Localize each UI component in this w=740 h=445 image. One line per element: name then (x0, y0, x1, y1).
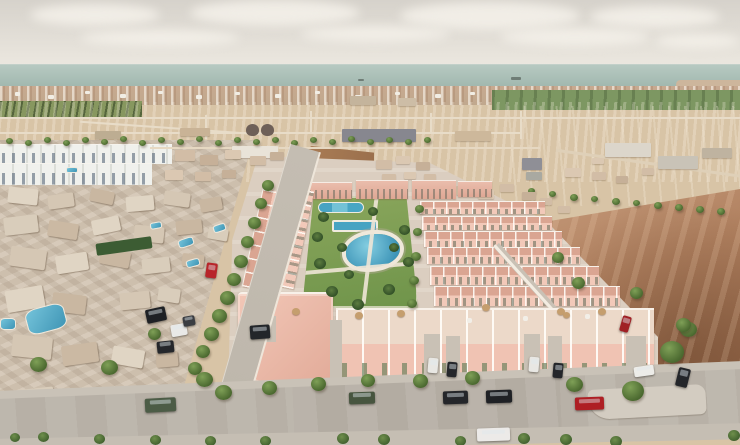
speck (396, 156, 410, 164)
bush (260, 436, 271, 445)
umb (355, 312, 363, 319)
dot (120, 94, 126, 98)
tree (196, 345, 210, 358)
bldg (95, 131, 121, 139)
tree (566, 377, 583, 392)
bush (560, 434, 572, 445)
tree (424, 137, 431, 143)
palm (389, 243, 399, 252)
palm (368, 207, 378, 216)
palm (318, 212, 329, 222)
speck (522, 192, 536, 200)
tree (30, 357, 47, 372)
tree (215, 385, 232, 400)
line (520, 111, 522, 139)
speck (376, 160, 392, 169)
tree (348, 136, 355, 142)
tree (215, 140, 222, 146)
tree (6, 138, 13, 144)
trow (422, 216, 552, 230)
bush (455, 436, 466, 445)
lump (125, 195, 154, 212)
tree (248, 217, 261, 229)
dot (235, 92, 240, 95)
tree (255, 198, 267, 209)
tree (311, 377, 326, 391)
ship (358, 79, 364, 81)
speck (270, 152, 284, 160)
bush (94, 434, 105, 444)
tree (612, 198, 620, 205)
cloud (30, 4, 160, 26)
speck (500, 184, 514, 192)
tree (241, 236, 254, 248)
tree (572, 277, 585, 289)
tree (196, 136, 203, 142)
bldg (658, 156, 698, 169)
tree (675, 204, 683, 211)
palm (399, 225, 410, 235)
dot (85, 91, 90, 94)
bldg (180, 128, 210, 136)
cloud (300, 26, 450, 42)
palm (337, 243, 347, 252)
aerial-render-scene (0, 0, 740, 445)
palm (314, 258, 326, 269)
tree (44, 137, 51, 143)
tree (405, 139, 412, 145)
dot (315, 91, 320, 94)
lump (7, 186, 39, 205)
palm (403, 257, 414, 267)
car (205, 262, 218, 278)
dot (435, 94, 441, 98)
speck (558, 206, 570, 213)
bush (378, 434, 390, 445)
car (528, 357, 539, 373)
speck (200, 155, 218, 165)
tree (633, 200, 640, 206)
tank (261, 124, 274, 136)
tree (696, 206, 704, 213)
tree (329, 139, 336, 145)
line (310, 111, 312, 133)
bldg (702, 148, 732, 158)
tree (272, 137, 279, 143)
speck (592, 172, 606, 180)
tree (310, 137, 317, 143)
bldg (455, 131, 491, 141)
speck (250, 156, 266, 165)
ship (511, 77, 521, 80)
cloud (80, 30, 240, 46)
speck (416, 162, 430, 170)
dot (470, 92, 475, 95)
car (552, 363, 563, 379)
palm (326, 286, 338, 297)
speck (195, 172, 211, 181)
car (443, 391, 468, 405)
tree (717, 208, 725, 215)
dot (196, 95, 202, 99)
pool (66, 167, 78, 173)
car (250, 324, 271, 339)
dot (275, 94, 281, 98)
tree (413, 228, 422, 236)
tree (204, 327, 219, 341)
tree (413, 374, 428, 388)
sun (467, 318, 472, 323)
tree (361, 374, 375, 387)
umb (482, 304, 490, 311)
car (575, 396, 604, 410)
dot (48, 95, 54, 99)
car (349, 392, 375, 405)
bldg (522, 158, 542, 170)
tree (570, 194, 578, 201)
tree (407, 299, 417, 308)
tree (158, 137, 165, 143)
tree (227, 273, 241, 286)
tree (234, 255, 248, 268)
umb (292, 308, 300, 315)
speck (642, 168, 654, 175)
tree (196, 372, 213, 387)
tree (552, 252, 564, 263)
lump (11, 334, 53, 360)
car (145, 397, 177, 413)
apron (587, 384, 706, 420)
bush (10, 433, 20, 442)
tree (139, 140, 146, 146)
palm (352, 299, 364, 310)
tree (415, 205, 424, 213)
line (0, 132, 520, 134)
sun (523, 316, 528, 321)
dot (158, 91, 163, 94)
bldg (526, 172, 542, 180)
car (477, 427, 510, 441)
drive (330, 320, 342, 378)
bush (150, 435, 161, 445)
bldg (605, 143, 651, 157)
cloud (500, 28, 650, 46)
cloud (590, 6, 720, 28)
car (156, 340, 174, 354)
tree (25, 140, 32, 146)
tree (101, 139, 108, 145)
tree (386, 137, 393, 143)
tree (220, 291, 235, 305)
dot (15, 92, 20, 96)
umb (397, 310, 405, 317)
bldg (350, 96, 376, 105)
palm (383, 284, 395, 295)
tree (148, 328, 161, 340)
palm (312, 232, 323, 242)
speck (565, 168, 581, 177)
speck (225, 150, 241, 159)
car (427, 358, 438, 374)
white-apartment-row (0, 144, 172, 164)
tree (262, 180, 274, 191)
bldg (398, 98, 416, 106)
speck (616, 176, 628, 183)
car (446, 362, 457, 378)
tree (465, 371, 480, 385)
apt (412, 180, 456, 199)
tank (246, 124, 259, 136)
line (0, 117, 740, 119)
cloud (190, 0, 360, 26)
speck (222, 170, 236, 178)
palm (344, 270, 354, 279)
car (182, 315, 196, 327)
cloud (655, 34, 740, 48)
bush (38, 432, 49, 442)
bush (337, 433, 349, 444)
line (150, 147, 540, 149)
tree (630, 287, 643, 299)
bush (205, 436, 216, 445)
lump (119, 290, 151, 310)
tree (622, 381, 644, 401)
car (486, 390, 512, 404)
tree (63, 140, 70, 146)
tree (212, 309, 227, 323)
speck (404, 172, 416, 179)
bush (728, 430, 740, 441)
speck (592, 158, 604, 164)
dot (395, 92, 400, 95)
apt (356, 180, 408, 199)
tree (654, 202, 662, 209)
umb (563, 312, 570, 318)
line (430, 113, 432, 133)
apt (458, 181, 492, 197)
pool (0, 318, 16, 330)
tree (409, 276, 419, 285)
lump (175, 219, 202, 236)
tree (234, 137, 241, 143)
tree (177, 139, 184, 145)
sun (585, 314, 590, 319)
cloud (400, 2, 580, 30)
tree (262, 381, 277, 395)
tree (676, 318, 691, 332)
bush (610, 436, 622, 445)
trow (420, 201, 545, 214)
tree (82, 137, 89, 143)
tree (367, 139, 374, 145)
tree (101, 360, 118, 375)
speck (165, 170, 183, 180)
tree (120, 136, 127, 142)
tree (591, 196, 598, 202)
umb (598, 308, 606, 315)
speck (175, 150, 195, 161)
trow (434, 286, 620, 306)
tree (253, 139, 260, 145)
tree (549, 191, 556, 197)
tree (660, 341, 684, 363)
bush (518, 433, 530, 444)
